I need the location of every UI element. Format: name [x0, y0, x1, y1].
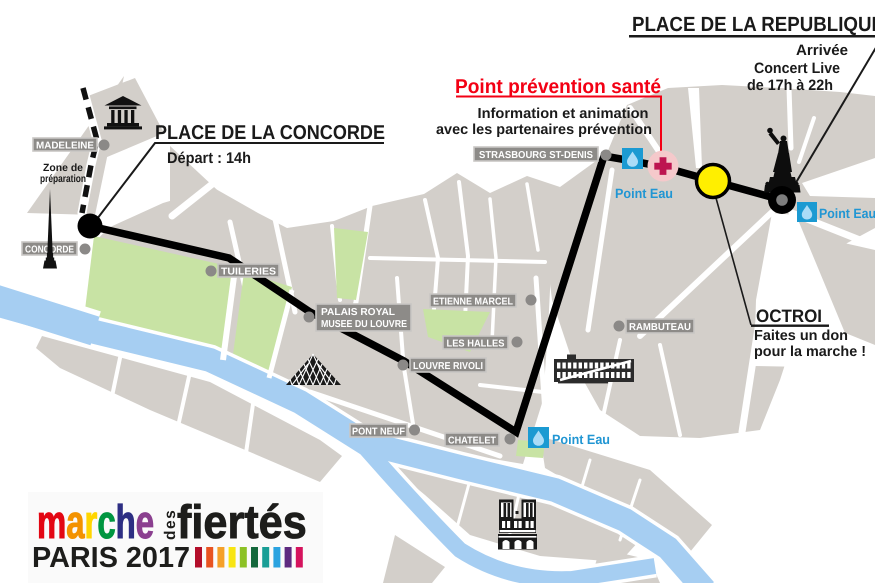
- svg-text:OCTROI: OCTROI: [756, 306, 822, 326]
- svg-text:PLACE DE LA CONCORDE: PLACE DE LA CONCORDE: [155, 122, 385, 144]
- svg-text:STRASBOURG ST-DENIS: STRASBOURG ST-DENIS: [479, 150, 593, 161]
- svg-text:LES HALLES: LES HALLES: [447, 339, 505, 350]
- svg-text:LOUVRE RIVOLI: LOUVRE RIVOLI: [413, 361, 483, 372]
- svg-text:pour la marche !: pour la marche !: [754, 344, 866, 360]
- svg-text:Arrivée: Arrivée: [796, 42, 848, 59]
- svg-text:PLACE DE LA REPUBLIQUE: PLACE DE LA REPUBLIQUE: [632, 13, 875, 36]
- svg-text:PARIS 2017: PARIS 2017: [32, 542, 190, 574]
- svg-text:marche: marche: [37, 495, 154, 548]
- svg-text:MUSEE DU LOUVRE: MUSEE DU LOUVRE: [321, 319, 407, 330]
- svg-text:avec les partenaires préventio: avec les partenaires prévention: [436, 122, 652, 138]
- svg-text:préparation: préparation: [40, 173, 86, 185]
- svg-text:Point prévention santé: Point prévention santé: [455, 76, 661, 98]
- svg-text:PONT NEUF: PONT NEUF: [352, 427, 405, 438]
- svg-text:ETIENNE MARCEL: ETIENNE MARCEL: [433, 297, 513, 308]
- svg-text:CHATELET: CHATELET: [448, 436, 496, 447]
- svg-text:de 17h à 22h: de 17h à 22h: [747, 77, 833, 94]
- svg-text:Départ : 14h: Départ : 14h: [167, 150, 251, 167]
- svg-text:RAMBUTEAU: RAMBUTEAU: [629, 322, 691, 333]
- svg-text:Point Eau: Point Eau: [819, 206, 875, 221]
- svg-text:Information et animation: Information et animation: [478, 106, 649, 122]
- svg-text:Faites un don: Faites un don: [754, 328, 848, 344]
- svg-text:Point Eau: Point Eau: [615, 186, 673, 201]
- svg-text:Point Eau: Point Eau: [552, 432, 610, 447]
- svg-text:Concert Live: Concert Live: [754, 60, 840, 77]
- svg-text:PALAIS ROYAL: PALAIS ROYAL: [321, 307, 395, 318]
- svg-text:TUILERIES: TUILERIES: [221, 267, 276, 278]
- svg-text:MADELEINE: MADELEINE: [36, 141, 94, 152]
- svg-text:fiertés: fiertés: [177, 495, 307, 548]
